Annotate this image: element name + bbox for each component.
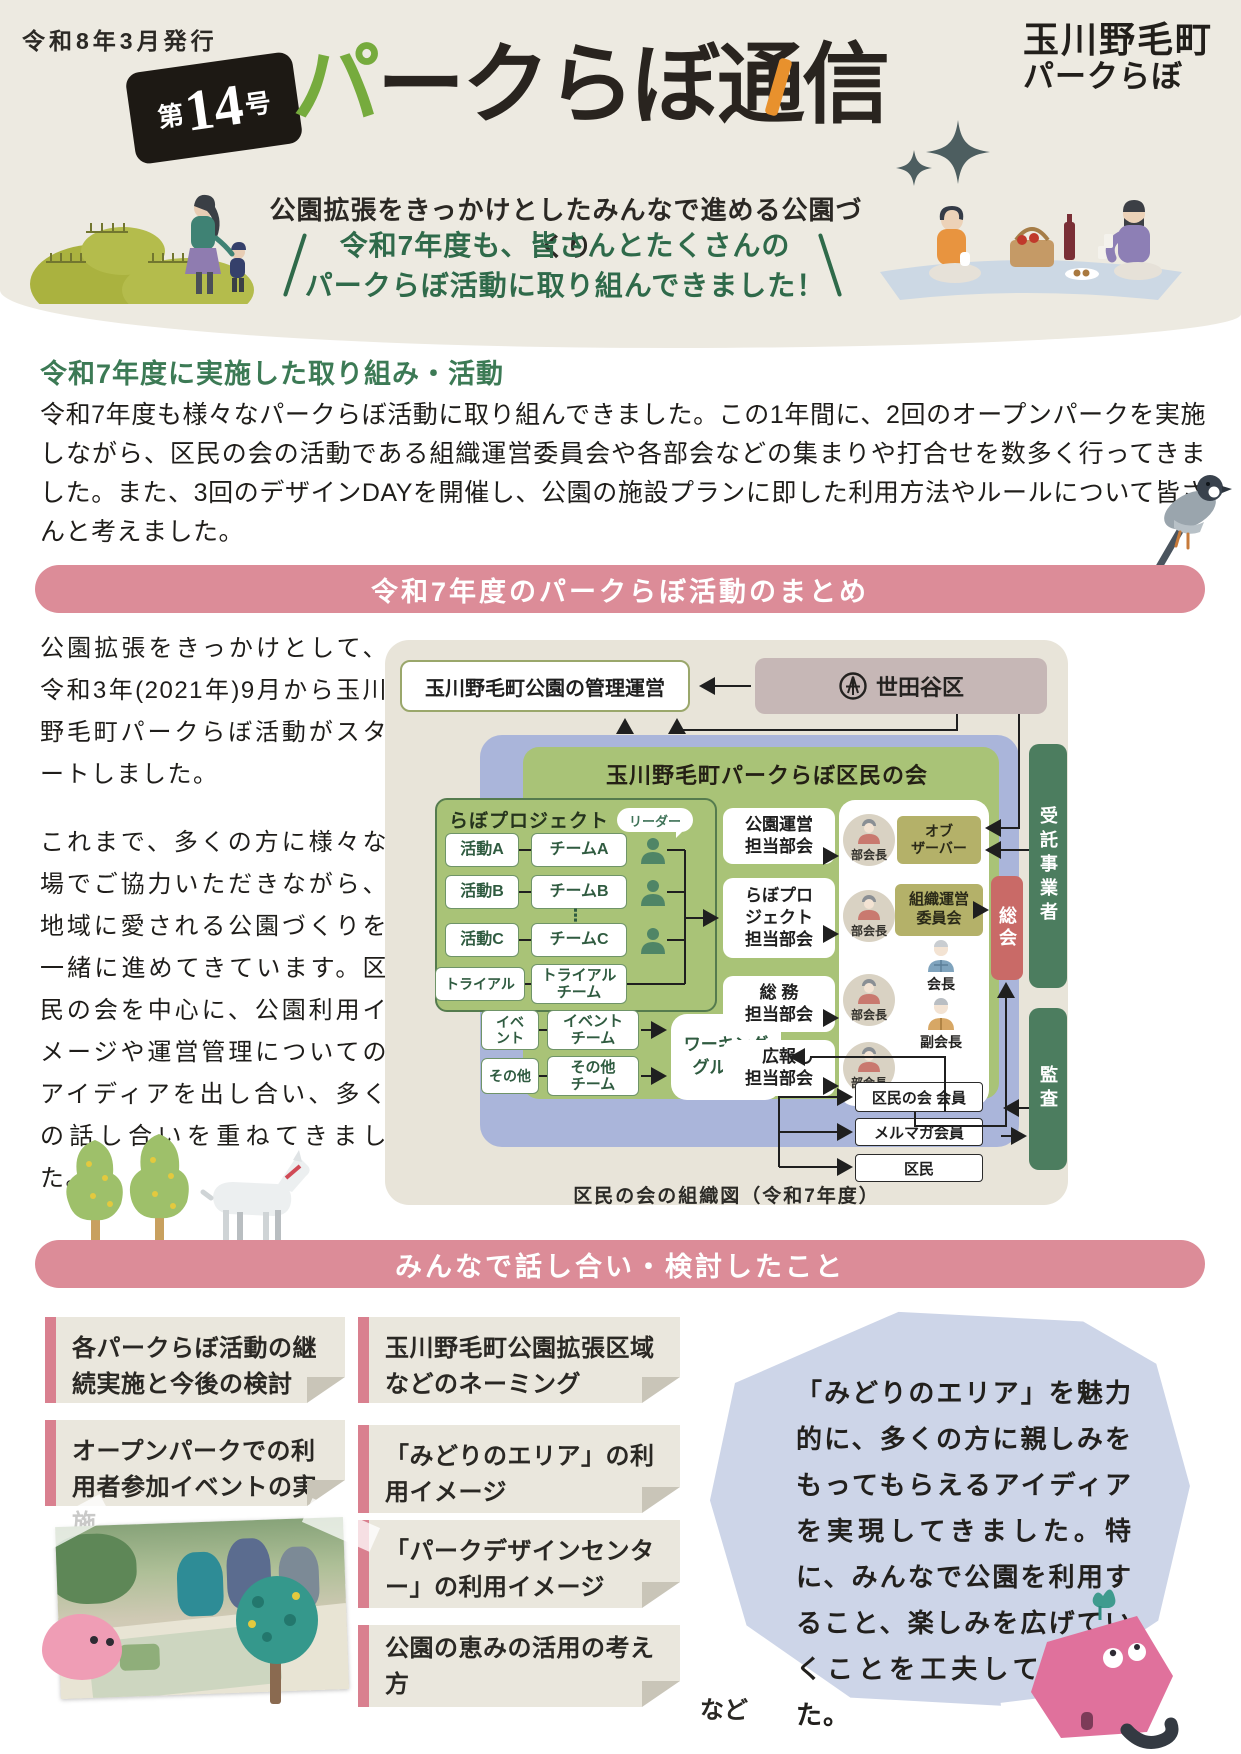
summary-paragraph-1: 公園拡張をきっかけとして、令和3年(2021年)9月から玉川野毛町パークらぼ活動… [40,628,388,796]
banner-discussion: みんなで話し合い・検討したこと [35,1240,1205,1288]
subcommittee-chief-avatar: 部会長 [843,890,895,942]
slogan-line1: 令和7年度も、皆さんとたくさんの [300,226,830,266]
member-box-council: 区民の会 会員 [855,1082,983,1112]
subcommittee-park-ops: 公園運営 担当部会 [723,808,835,864]
leader-person-icon [639,836,667,864]
setagaya-label: 世田谷区 [876,670,964,702]
chairman-icon [925,940,957,972]
person-icon [856,978,882,1004]
observer-box: オブ ザーバー [897,816,981,864]
chief-label: 部会長 [851,922,887,942]
person-icon [856,894,882,920]
picnic-illustration [852,176,1198,304]
activity-c: 活動C [445,923,519,957]
summary-left-column: 公園拡張をきっかけとして、令和3年(2021年)9月から玉川野毛町パークらぼ活動… [40,628,388,1200]
note-item: オープンパークでの利用者参加イベントの実施 [45,1420,345,1506]
chart-caption: 区民の会の組織図（令和7年度） [385,1181,1068,1208]
leader-person-icon [639,926,667,954]
trustee-box: 受託事業者 [1029,744,1067,988]
subcommittee-chief-avatar: 部会長 [843,814,895,866]
leader-person-icon [639,878,667,906]
labo-project-title: らぼプロジェクト [449,806,609,833]
person-icon [856,1046,882,1072]
other-team: その他 チーム [547,1056,639,1096]
event-team: イベント チーム [547,1010,639,1050]
note-item: 玉川野毛町公園拡張区域などのネーミング [358,1317,680,1403]
subcommittee-general-affairs: 総 務 担当部会 [723,976,835,1032]
chief-label: 部会長 [851,846,887,866]
event-label: イベ ント [481,1010,539,1050]
setagaya-emblem-icon [838,671,868,701]
title-part-green: パ [292,35,377,134]
teal-tree-illustration [236,1576,318,1664]
audit-box: 監査 [1029,1008,1067,1170]
team-trial: トライアル チーム [531,964,627,1004]
issue-date: 令和8年3月発行 [22,22,218,56]
general-meeting-box: 総会 [991,876,1023,980]
slogan: 令和7年度も、皆さんとたくさんの パークらぼ活動に取り組んできました！ [300,226,830,306]
note-item: 公園の恵みの活用の考え方 [358,1625,680,1707]
subcommittee-labo-project: らぼプロ ジェクト 担当部会 [723,878,835,958]
org-chart: 玉川野毛町公園の管理運営 世田谷区 玉川野毛町パークらぼ区民の会 らぼプロジェク… [385,640,1068,1205]
council-title: 玉川野毛町パークらぼ区民の会 [535,758,999,790]
member-box-newsletter: メルマガ会員 [855,1118,983,1146]
banner-summary: 令和7年度のパークらぼ活動のまとめ [35,565,1205,613]
activity-a: 活動A [445,833,519,867]
badge-number: 14 [181,75,247,141]
pink-house-character [985,1580,1185,1750]
chart-setagaya-box: 世田谷区 [755,658,1047,714]
logo-line1: 玉川野毛町 [1023,20,1213,60]
newsletter-title: パークらぼ通信 [292,14,887,141]
subcommittee-chief-avatar: 部会長 [843,974,895,1026]
newsletter-page: 令和8年3月発行 第 14 号 パークらぼ通信 玉川野毛町 パークらぼ 公園拡張… [0,0,1241,1754]
other-label: その他 [481,1058,539,1094]
vice-chairman-icon [925,998,957,1030]
intro-paragraph: 令和7年度も様々なパークらぼ活動に取り組んできました。この1年間に、2回のオープ… [40,396,1206,552]
parklab-logo: 玉川野毛町 パークらぼ [1023,20,1213,95]
note-item: 「みどりのエリア」の利用イメージ [358,1425,680,1513]
title-part-last: 信 [802,35,887,134]
logo-line2: パークらぼ [1023,60,1213,95]
badge-prefix: 第 [155,94,186,134]
vice-chairman-label: 副会長 [901,1032,981,1052]
activity-b: 活動B [445,875,519,909]
intro-heading: 令和7年度に実施した取り組み・活動 [40,352,504,391]
team-c: チームC [531,923,627,957]
badge-suffix: 号 [242,82,273,122]
chief-label: 部会長 [851,1006,887,1026]
note-item: 「パークデザインセンター」の利用イメージ [358,1520,680,1608]
hills-family-illustration [28,166,273,304]
team-a: チームA [531,833,627,867]
title-part-black: ークらぼ通 [377,35,802,134]
person-icon [856,818,882,844]
chairman-label: 会長 [901,974,981,994]
team-b: チームB [531,875,627,909]
chart-management-box: 玉川野毛町公園の管理運営 [400,660,690,712]
note-item: 各パークらぼ活動の継続実施と今後の検討 [45,1317,345,1403]
slogan-line2: パークらぼ活動に取り組んできました！ [300,266,830,306]
pink-critter-illustration [42,1614,122,1680]
member-box-residents: 区民 [855,1154,983,1182]
activity-trial: トライアル [435,967,525,1001]
leader-callout: リーダー [617,808,693,832]
steering-committee-box: 組織運営 委員会 [895,884,983,936]
trees-goat-illustration [55,1134,350,1242]
subcommittee-pr: 広報 担当部会 [723,1040,835,1096]
